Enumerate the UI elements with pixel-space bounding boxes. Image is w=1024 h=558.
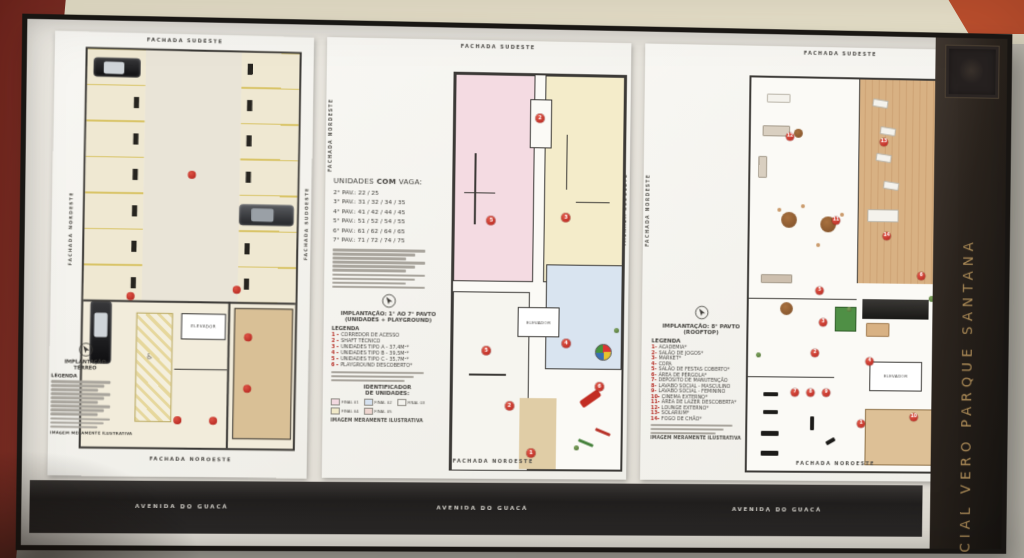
gym-equipment: [763, 410, 778, 414]
brand-logo: [945, 45, 1000, 99]
panel-typical-floor: FACHADA SUDESTE FACHADA NORDESTE FACHADA…: [322, 37, 632, 480]
rooftop-legend: 1-ACADEMIA*2-SALÃO DE JOGOS*3-MARKET*4-C…: [651, 345, 751, 422]
gym-bench: [825, 437, 835, 445]
playground-carousel: [595, 344, 612, 361]
elevator-box: ELEVADOR: [869, 362, 922, 392]
deck-table: [867, 209, 898, 222]
unit-marker: 4: [562, 339, 571, 348]
units-with-parking-heading: UNIDADES COM VAGA:: [333, 176, 446, 187]
photo-of-floorplan-board: FACHADA SUDESTE FACHADA NORDESTE FACHADA…: [0, 0, 1024, 558]
facade-label-bottom: FACHADA NOROESTE: [149, 456, 232, 463]
illegible-text-line: [51, 384, 105, 387]
display-board: FACHADA SUDESTE FACHADA NORDESTE FACHADA…: [16, 14, 1013, 554]
street-name: AVENIDA DO GUACÁ: [732, 507, 822, 513]
armchair: [758, 156, 767, 178]
kitchen-counter: [862, 299, 928, 319]
unit-marker: [232, 286, 240, 294]
compass-icon: [78, 342, 94, 357]
final-swatch: FINAL 01: [331, 398, 359, 405]
typical-floor-legend: 1 -CORREDOR DE ACESSO2 -SHAFT TÉCNICO3 -…: [331, 333, 444, 370]
legend-note-illegible: [50, 417, 118, 428]
disclaimer: IMAGEM MERAMENTE ILUSTRATIVA: [331, 418, 444, 424]
illegible-text-line: [332, 273, 424, 277]
unit-marker: 8: [807, 388, 815, 396]
rooftop-floor-plan: ELEVADOR 1213111456324789110: [745, 75, 949, 473]
compass-icon: [694, 305, 709, 320]
illegible-text-line: [51, 393, 111, 396]
illegible-text-line: [50, 409, 104, 412]
illegible-text-line: [333, 249, 425, 253]
panel-title-line2: TÉRREO: [51, 365, 119, 372]
illegible-text-line: [51, 397, 105, 400]
wall: [749, 297, 857, 300]
unit-marker: 2: [811, 349, 819, 357]
panel-ground-floor: FACHADA SUDESTE FACHADA NORDESTE FACHADA…: [47, 31, 314, 478]
illegible-text-line: [332, 281, 405, 284]
unit-marker: 3: [819, 318, 827, 326]
facade-label-top: FACHADA SUDESTE: [147, 37, 223, 45]
car-top-left: [93, 57, 140, 77]
disclaimer: IMAGEM MERAMENTE ILUSTRATIVA: [50, 430, 118, 436]
notes-illegible: [332, 249, 437, 273]
unit-type-yellow-right: [543, 75, 625, 283]
unit-type-pink-left: [453, 74, 536, 282]
illegible-text-line: [332, 269, 405, 272]
illegible-text-line: [50, 425, 97, 428]
illegible-text-line: [332, 285, 424, 289]
weight-rack: [810, 416, 814, 430]
plant: [614, 328, 619, 333]
legend-item: 14-FOGO DE CHÃO*: [651, 417, 750, 423]
unit-marker: 4: [866, 358, 874, 366]
gym-equipment: [763, 392, 778, 396]
unit-marker: 11: [832, 216, 840, 224]
brand-vertical-text: CIAL VERO PARQUE SANTANA: [958, 238, 977, 553]
unit-identifier-swatches: FINAL 01FINAL 02FINAL 03FINAL 04FINAL 05: [331, 398, 444, 415]
illegible-text-line: [650, 432, 715, 435]
panel-subtitle: (ROOFTOP): [652, 329, 751, 336]
illegible-text-line: [650, 428, 723, 431]
chair: [816, 243, 820, 247]
illegible-text-line: [50, 417, 110, 420]
illegible-text-line: [51, 389, 98, 392]
illegible-text-line: [331, 379, 404, 382]
ground-floor-legend-block: IMPLANTAÇÃO TÉRREO LEGENDA IMAGEM MERAME…: [50, 341, 119, 435]
notes-illegible: [332, 273, 437, 289]
final-swatch: FINAL 02: [364, 399, 392, 406]
panel-subtitle: (UNIDADES + PLAYGROUND): [332, 317, 445, 324]
legend-item: 6 -PLAYGROUND DESCOBERTO*: [331, 363, 444, 370]
unit-marker: 5: [816, 286, 824, 294]
elevator-box: ELEVADOR: [517, 307, 560, 337]
playground-slide: [579, 389, 602, 408]
plant: [847, 306, 852, 311]
compass-icon: [381, 293, 396, 308]
sofa-top: [767, 93, 791, 102]
legend-heading: LEGENDA: [51, 374, 119, 380]
illegible-text-line: [332, 261, 424, 265]
plant: [573, 446, 578, 451]
treadmill: [761, 451, 779, 456]
green-counter: [835, 306, 857, 332]
coffee-table: [794, 129, 803, 138]
round-table: [780, 302, 793, 315]
elevator-box: ELEVADOR: [181, 313, 226, 340]
unit-marker: 10: [910, 413, 918, 421]
facade-label-right: FACHADA SUDOESTE: [304, 187, 310, 260]
final-swatch: FINAL 05: [364, 408, 392, 415]
unit-marker: 6: [595, 382, 604, 391]
technical-shaft: [529, 99, 552, 149]
unit-marker: 1: [857, 420, 865, 428]
unit-marker: [244, 334, 252, 342]
unit-marker: 14: [883, 233, 891, 241]
unit-marker: [126, 292, 134, 300]
playground-seesaw: [595, 427, 611, 435]
final-swatch: FINAL 03: [397, 399, 425, 406]
unit-marker: 12: [786, 133, 794, 141]
typical-floor-info-column: UNIDADES COM VAGA: 2° PAV.: 22 / 253° PA…: [331, 176, 447, 424]
rooftop-info-column: IMPLANTAÇÃO: 8° PAVTO (ROOFTOP) LEGENDA …: [650, 305, 750, 443]
unit-marker: [209, 416, 217, 424]
unit-marker: 5: [482, 346, 491, 355]
illegible-text-line: [333, 253, 416, 256]
street-band: AVENIDA DO GUACÁ AVENIDA DO GUACÁ AVENID…: [29, 480, 922, 537]
facade-label-bottom: FACHADA NOROESTE: [796, 461, 875, 467]
unit-marker: 6: [917, 272, 925, 280]
unit-marker: 2: [505, 401, 514, 410]
sofa-l: [761, 274, 793, 283]
handicap-hatch-area: [134, 312, 173, 422]
illegible-text-line: [651, 424, 733, 427]
wall: [748, 376, 834, 378]
illegible-text-line: [50, 421, 104, 424]
identifier-heading-line2: DE UNIDADES:: [331, 390, 444, 397]
legend-items-illegible: [50, 380, 118, 416]
pergola-area: [864, 409, 937, 466]
unit-marker: 2: [535, 114, 544, 123]
legend-note-illegible: [331, 371, 436, 382]
illegible-text-line: [332, 265, 415, 268]
treadmill: [761, 431, 779, 436]
legend-note-illegible: [650, 424, 743, 435]
unit-marker: 13: [880, 139, 888, 147]
illegible-text-line: [331, 375, 414, 378]
panel-rooftop: FACHADA SUDESTE FACHADA NORDESTE FACHADA…: [640, 43, 959, 481]
playground-seesaw: [578, 439, 594, 447]
street-name: AVENIDA DO GUACÁ: [135, 504, 229, 511]
plant: [756, 353, 761, 358]
unit-marker: 1: [526, 449, 535, 458]
parking-units-list: 2° PAV.: 22 / 253° PAV.: 31 / 32 / 34 / …: [333, 189, 446, 247]
illegible-text-line: [51, 401, 98, 404]
car-suv-right: [239, 204, 294, 226]
final-swatch: FINAL 04: [331, 407, 359, 414]
facade-label-top: FACHADA SUDESTE: [804, 51, 877, 58]
unit-marker: 3: [561, 213, 570, 222]
chair: [840, 212, 844, 216]
facade-label-left: FACHADA NORDESTE: [646, 174, 652, 247]
facade-label-left: FACHADA NORDESTE: [68, 191, 74, 265]
brand-strip: CIAL VERO PARQUE SANTANA: [930, 37, 1008, 548]
handicap-symbol: ♿: [146, 352, 153, 361]
typical-floor-plan: ELEVADOR 25354216: [449, 72, 627, 472]
chair: [801, 204, 805, 208]
lobby-room: [232, 308, 293, 440]
disclaimer: IMAGEM MERAMENTE ILUSTRATIVA: [650, 436, 749, 442]
facade-label-bottom: FACHADA NOROESTE: [453, 459, 534, 466]
round-table: [781, 211, 797, 227]
illegible-text-line: [51, 405, 111, 408]
pav-line: 7° PAV.: 71 / 72 / 74 / 75: [333, 236, 446, 247]
illegible-text-line: [50, 413, 97, 416]
facade-label-left: FACHADA NORDESTE: [329, 99, 335, 172]
illegible-text-line: [331, 371, 423, 374]
dining-table-wood: [866, 322, 890, 336]
unit-marker: 5: [487, 216, 496, 225]
illegible-text-line: [332, 277, 415, 280]
unit-marker: 9: [822, 389, 830, 397]
chair: [777, 207, 781, 211]
wall: [226, 302, 230, 448]
unit-marker: [173, 416, 181, 424]
unit-marker: 7: [791, 388, 799, 396]
street-name: AVENIDA DO GUACÁ: [436, 506, 528, 512]
facade-label-top: FACHADA SUDESTE: [461, 44, 536, 51]
illegible-text-line: [333, 257, 406, 260]
wall: [174, 368, 227, 370]
illegible-text-line: [51, 380, 111, 383]
